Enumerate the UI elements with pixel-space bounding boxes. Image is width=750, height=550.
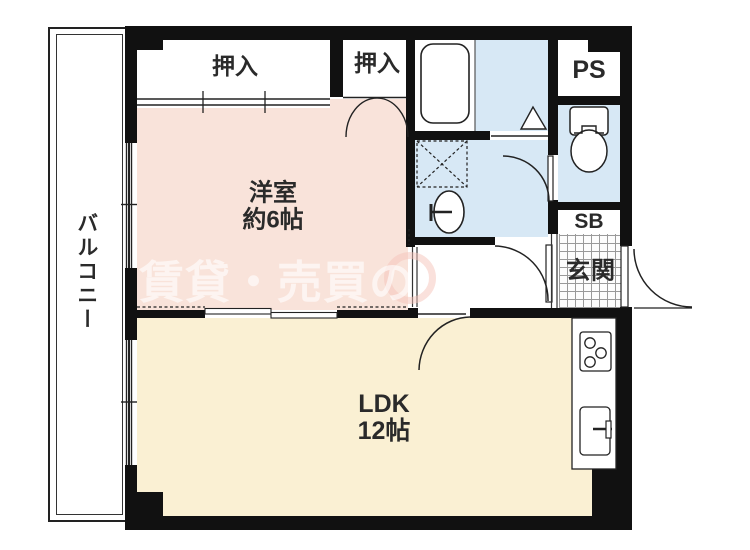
washroom-fixtures [409, 141, 467, 245]
washing-machine-pan-icon [417, 141, 467, 187]
ldk-door-arc [419, 317, 470, 370]
bath-door-triangle-icon [521, 107, 546, 129]
entrance-step-lines [413, 234, 558, 308]
label-western-size: 約6帖 [242, 208, 303, 235]
label-closet-2: 押入 [354, 51, 400, 77]
wall-below-ps [548, 96, 620, 105]
bathtub-icon [421, 44, 469, 123]
label-entrance: 玄関 [566, 259, 616, 286]
door-arcs [418, 156, 692, 370]
floorplan-linework [0, 0, 750, 550]
stove-icon [580, 332, 611, 371]
wall-ldk-top-stub [408, 308, 418, 318]
entrance-door-arc [634, 249, 692, 307]
floorplan-canvas: 押入 押入 洋室 約6帖 LDK 12帖 PS SB 玄関 バルコニー 賃貸・売… [0, 0, 750, 550]
toilet-icon [570, 107, 608, 172]
wall-partition-right [337, 310, 408, 318]
label-ldk: LDK [358, 390, 409, 418]
wall-ps-notch [588, 33, 620, 52]
kitchen-sink-icon [580, 407, 612, 455]
label-pipe-space: PS [572, 56, 605, 84]
wall-washroom-bottom [408, 237, 495, 245]
washbasin-icon [431, 191, 464, 233]
entrance-door-leaf [621, 246, 628, 307]
label-ldk-size: 12帖 [358, 417, 411, 445]
label-shoe-box: SB [574, 210, 603, 234]
wall-bath-washroom [415, 131, 490, 140]
label-western-room: 洋室 [249, 181, 297, 208]
kitchen-counter [572, 318, 616, 469]
wall-kitchen-corner-block [592, 468, 630, 530]
toilet-door-arc [503, 156, 549, 201]
label-closet-1: 押入 [212, 54, 258, 80]
closet2-double-door [343, 98, 408, 138]
wall-western-right [406, 40, 415, 247]
bathroom-fixtures [421, 40, 548, 140]
wall-ldk-top [470, 308, 632, 318]
wall-bath-right [548, 33, 558, 155]
wall-left-middle [125, 268, 137, 340]
wall-bottom [125, 516, 632, 530]
washroom-door-arc [495, 246, 548, 301]
wall-closet-divider [330, 40, 343, 97]
wall-right-upper [620, 26, 632, 246]
wall-left-upper [125, 33, 137, 143]
label-balcony: バルコニー [74, 212, 98, 332]
wall-partition-left [137, 310, 205, 318]
closet1-sliding-door [137, 91, 330, 113]
wall-below-toilet [548, 202, 622, 210]
wall-left-step [125, 492, 163, 520]
